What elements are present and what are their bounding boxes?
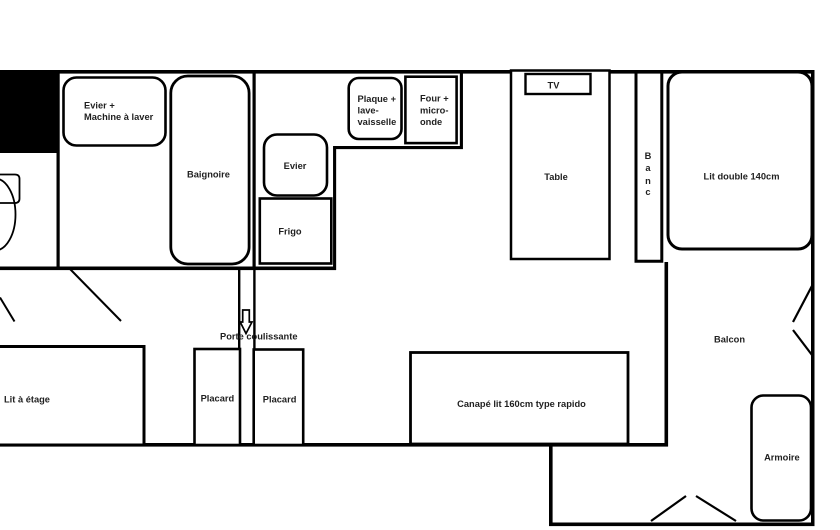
svg-text:Canapé lit 160cm type rapido: Canapé lit 160cm type rapido	[457, 399, 586, 409]
svg-text:TV: TV	[548, 80, 561, 90]
svg-text:Placard: Placard	[201, 394, 235, 404]
svg-text:micro-: micro-	[420, 105, 448, 115]
svg-text:Frigo: Frigo	[278, 227, 302, 237]
svg-text:Placard: Placard	[263, 395, 297, 405]
svg-text:a: a	[645, 163, 651, 173]
svg-text:Armoire: Armoire	[764, 453, 800, 463]
svg-text:Machine à laver: Machine à laver	[84, 112, 154, 122]
svg-text:Balcon: Balcon	[714, 334, 745, 344]
svg-text:Lit double 140cm: Lit double 140cm	[704, 172, 780, 182]
svg-text:n: n	[645, 176, 651, 186]
svg-text:c: c	[645, 187, 650, 197]
svg-text:Baignoire: Baignoire	[187, 169, 230, 179]
svg-text:Lit à étage: Lit à étage	[4, 395, 50, 405]
svg-text:Table: Table	[544, 172, 568, 182]
svg-text:Evier +: Evier +	[84, 101, 115, 111]
svg-text:B: B	[645, 151, 652, 161]
svg-text:vaisselle: vaisselle	[358, 117, 397, 127]
svg-text:Porte coulissante: Porte coulissante	[220, 331, 298, 341]
svg-text:onde: onde	[420, 117, 442, 127]
svg-text:Four +: Four +	[420, 94, 449, 104]
svg-text:lave-: lave-	[358, 106, 379, 116]
svg-text:Plaque +: Plaque +	[358, 94, 397, 104]
svg-text:Evier: Evier	[284, 161, 307, 171]
